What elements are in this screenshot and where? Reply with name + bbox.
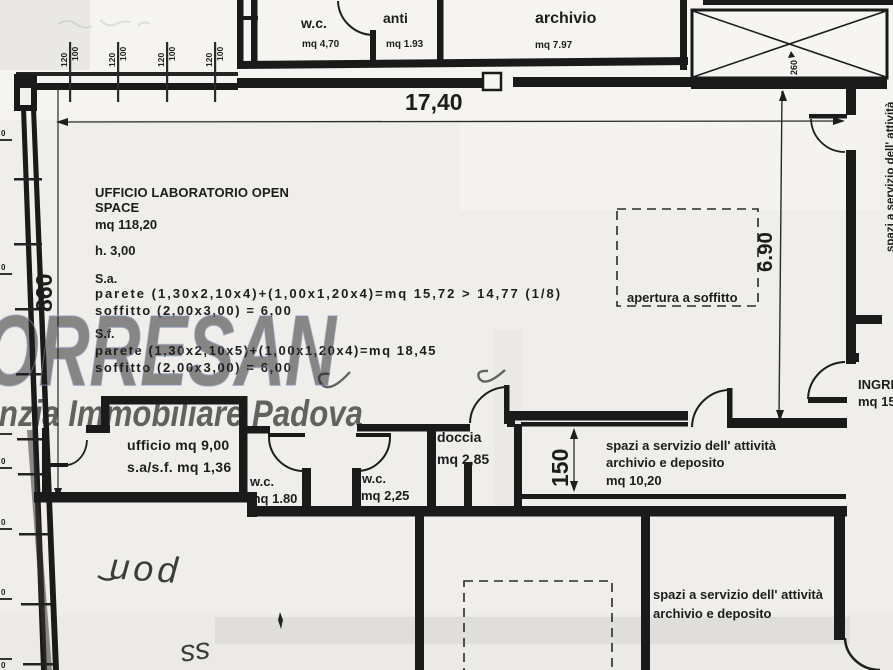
svg-text:100: 100: [167, 47, 177, 61]
svg-text:0: 0: [1, 661, 6, 670]
svg-text:150: 150: [547, 449, 573, 487]
svg-text:anti: anti: [383, 10, 408, 26]
svg-text:S.a.: S.a.: [95, 272, 117, 286]
svg-text:ss: ss: [178, 635, 212, 670]
svg-text:UFFICIO LABORATORIO OPEN: UFFICIO LABORATORIO OPEN: [95, 185, 289, 200]
svg-text:doccia: doccia: [437, 429, 482, 445]
svg-text:120: 120: [59, 53, 69, 67]
svg-text:17,40: 17,40: [405, 89, 463, 115]
svg-text:ORRESAN: ORRESAN: [0, 295, 337, 407]
svg-text:ufficio mq 9,00: ufficio mq 9,00: [127, 437, 230, 453]
svg-text:120: 120: [107, 53, 117, 67]
svg-text:mq 15: mq 15: [858, 394, 893, 409]
svg-text:120: 120: [156, 53, 166, 67]
svg-text:archivio e deposito: archivio e deposito: [606, 455, 725, 470]
svg-text:100: 100: [118, 47, 128, 61]
svg-text:pon: pon: [104, 551, 180, 597]
svg-text:SPACE: SPACE: [95, 200, 140, 215]
svg-text:0: 0: [1, 129, 6, 138]
svg-text:0: 0: [1, 263, 6, 272]
svg-text:120: 120: [204, 53, 214, 67]
svg-text:spazi a servizio dell' attivit: spazi a servizio dell' attività: [653, 587, 824, 602]
svg-text:w.c.: w.c.: [361, 471, 386, 486]
svg-text:archivio e deposito: archivio e deposito: [653, 606, 772, 621]
svg-text:w.c.: w.c.: [300, 15, 327, 31]
svg-text:mq 2,85: mq 2,85: [437, 451, 489, 467]
svg-text:spazi a servizio dell' attivit: spazi a servizio dell' attività: [606, 438, 777, 453]
svg-text:mq 10,20: mq 10,20: [606, 473, 662, 488]
svg-text:INGRE: INGRE: [858, 377, 893, 392]
svg-text:h. 3,00: h. 3,00: [95, 243, 135, 258]
svg-text:archivio: archivio: [535, 10, 597, 27]
svg-text:100: 100: [215, 47, 225, 61]
svg-text:100: 100: [70, 47, 80, 61]
svg-text:mq 1.80: mq 1.80: [249, 491, 297, 506]
svg-text:apertura a soffitto: apertura a soffitto: [627, 290, 738, 305]
svg-text:Agenzia Immobiliare Padova: Agenzia Immobiliare Padova: [0, 393, 363, 434]
svg-text:spazi a servizio dell' attivit: spazi a servizio dell' attività: [885, 101, 893, 252]
svg-text:mq 4,70: mq 4,70: [302, 39, 340, 50]
svg-text:260: 260: [789, 60, 799, 75]
svg-text:mq 2,25: mq 2,25: [361, 488, 409, 503]
svg-text:0: 0: [1, 588, 6, 597]
svg-text:mq 118,20: mq 118,20: [95, 217, 157, 232]
svg-text:0: 0: [1, 518, 6, 527]
svg-text:mq 1.93: mq 1.93: [386, 39, 424, 50]
svg-text:mq 7.97: mq 7.97: [535, 40, 573, 51]
svg-text:s.a/s.f. mq 1,36: s.a/s.f. mq 1,36: [127, 459, 231, 475]
svg-text:w.c.: w.c.: [249, 474, 274, 489]
svg-text:0: 0: [1, 457, 6, 466]
